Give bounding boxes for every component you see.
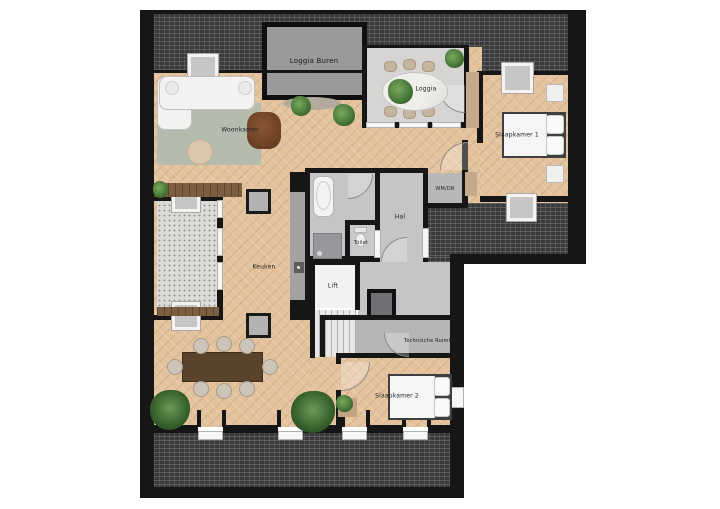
bed2-pillow-top: [434, 377, 450, 396]
nightstand1-bottom: [546, 165, 564, 183]
dining-chair-1: [193, 338, 209, 354]
room-label-slaapkamer2: Slaapkamer 2: [375, 393, 419, 400]
wall-living-top: [154, 70, 364, 73]
window-stub-3b: [366, 410, 370, 427]
living-plant-2: [333, 104, 355, 126]
wall-lift-west: [310, 260, 315, 358]
wall-facade-5: [428, 425, 450, 433]
window-stub-1b: [222, 410, 226, 427]
bedroom2-plant: [336, 395, 353, 412]
wall-loggia-left: [362, 45, 367, 127]
wall-tr-west: [320, 315, 325, 357]
facade-window-sill-4: [403, 431, 428, 440]
room-label-technische-ruimte: Technische Ruimte: [404, 338, 454, 344]
dining-chair-7: [167, 359, 183, 375]
patio-floor: [157, 198, 218, 316]
skylight-bedroom1-top: [502, 63, 533, 93]
room-label-slaapkamer1: Slaapkamer 1: [495, 132, 539, 139]
dining-chair-8: [262, 359, 278, 375]
room-label-woonkamer: Woonkamer: [221, 127, 259, 134]
dining-table: [182, 352, 263, 382]
loggia-window-2: [399, 122, 428, 128]
toilet-door: [374, 230, 381, 258]
dining-chair-4: [193, 381, 209, 397]
patio-window-2: [217, 262, 223, 290]
sofa-cushion-left: [165, 81, 179, 95]
kitchen-island-bottom: [246, 313, 271, 338]
hall-runner: [465, 172, 477, 196]
outer-wall-bottom: [140, 487, 464, 498]
shower-drain: [317, 251, 322, 256]
outer-wall-left: [140, 10, 154, 497]
dining-chair-6: [239, 381, 255, 397]
kitchen-counter: [290, 172, 305, 320]
window-stub-1a: [197, 410, 201, 427]
loggia-window-3: [432, 122, 461, 128]
window-stub-2a: [277, 410, 281, 427]
sofa-cushion-right: [238, 81, 252, 95]
bed2-pillow-bottom: [434, 398, 450, 417]
wall-loggia-top: [366, 45, 464, 48]
room-label-loggia: Loggia: [415, 86, 436, 93]
bathtub-basin: [316, 181, 331, 210]
patio-window-1: [217, 228, 223, 256]
loggia-corner-plant: [445, 49, 464, 68]
patio-bench: [157, 307, 219, 316]
cooktop-dot: [297, 266, 300, 269]
loggia-chair-1: [384, 61, 397, 72]
wall-lift-east: [355, 260, 360, 310]
loggia-table-plant: [388, 79, 413, 104]
outer-wall-top: [154, 10, 586, 14]
wall-facade-4: [367, 425, 403, 433]
entrance-door: [422, 228, 429, 258]
kitchen-tall-cabinet-top: [290, 172, 305, 192]
outer-wall-roof-bottom: [452, 254, 586, 264]
wall-bath-north: [305, 168, 428, 173]
room-label-keuken: Keuken: [252, 264, 275, 271]
bed1-pillow-bottom: [546, 136, 564, 155]
patio-door: [217, 200, 223, 218]
room-label-hal: Hal: [395, 214, 405, 221]
roof-right-center: [425, 202, 568, 256]
skylight-bedroom1-bottom: [507, 194, 536, 221]
facade-window-sill-1: [198, 431, 223, 440]
facade-window-sill-3: [342, 431, 367, 440]
wall-facade-2: [223, 425, 278, 433]
floor-plan: Loggia Buren Loggia Woonkamer Slaapkamer…: [0, 0, 720, 509]
outer-wall-right-upper: [568, 10, 586, 262]
roof-bottom: [154, 433, 450, 489]
bed1-pillow-top: [546, 115, 564, 134]
bedroom2-east-window: [450, 387, 464, 408]
outer-wall-right-lower: [450, 254, 464, 490]
patio-small-plant: [153, 181, 168, 198]
room-label-wmdr: WM/DR: [435, 186, 454, 192]
loggia-chair-4: [384, 106, 397, 117]
nightstand1-top: [546, 84, 564, 102]
living-plant-1: [291, 96, 311, 116]
wall-tr-north: [320, 315, 450, 320]
wall-bath-east: [375, 173, 380, 220]
bedroom1-runner: [466, 72, 479, 128]
wall-south-wing-north: [336, 353, 450, 358]
dining-chair-3: [239, 338, 255, 354]
room-label-lift: Lift: [328, 283, 338, 290]
wall-toilet-west: [345, 220, 350, 260]
dining-chair-2: [216, 336, 232, 352]
kitchen-tall-cabinet-bottom: [290, 300, 305, 320]
loggia-chair-2: [403, 59, 416, 70]
room-label-loggia-buren: Loggia Buren: [290, 57, 339, 65]
loggia-chair-3: [422, 61, 435, 72]
loggia-window-1: [366, 122, 395, 128]
facade-window-sill-2: [278, 431, 303, 440]
pouf: [187, 139, 213, 165]
room-label-toilet: Toilet: [354, 240, 368, 246]
wall-lift-north: [313, 260, 358, 265]
kitchen-island-top: [246, 189, 271, 214]
dining-chair-5: [216, 383, 232, 399]
